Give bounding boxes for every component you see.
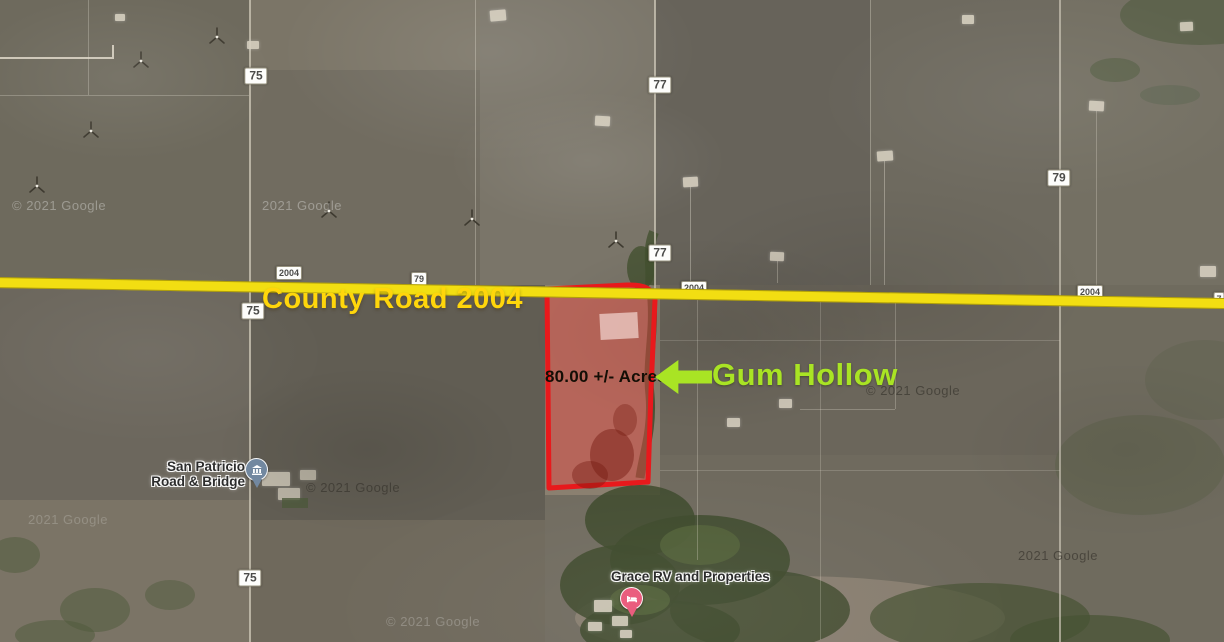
building (594, 600, 612, 612)
field-boundary (88, 0, 89, 95)
lodging-bed-pin-icon (620, 587, 643, 617)
parcel-acres-label: 80.00 +/- Acres (545, 367, 667, 387)
field-boundary (697, 295, 698, 560)
road-shield: 79 (1047, 170, 1070, 187)
wind-turbine-icon (461, 208, 483, 230)
road-shield: 75 (241, 303, 264, 320)
building (612, 616, 628, 626)
google-watermark: 2021 Google (28, 512, 108, 527)
well-pad (727, 418, 740, 427)
field-boundary (0, 95, 249, 96)
road-line (249, 0, 251, 642)
field-boundary (800, 409, 895, 410)
wind-turbine-icon (206, 26, 228, 48)
road-shield: 2004 (276, 266, 302, 280)
google-watermark: 2021 Google (1018, 548, 1098, 563)
access-track (690, 187, 691, 283)
well-pad (1180, 22, 1193, 31)
access-track (1096, 111, 1097, 285)
building (300, 470, 316, 480)
satellite-map: © 2021 Google 2021 Google © 2021 Google … (0, 0, 1224, 642)
well-pad (1200, 266, 1216, 277)
google-watermark: © 2021 Google (12, 198, 106, 213)
road-shield: 75 (238, 570, 261, 587)
well-pad (683, 177, 699, 188)
google-watermark: © 2021 Google (386, 614, 480, 629)
well-pad (770, 252, 784, 261)
well-pad (1089, 101, 1105, 112)
wind-turbine-icon (26, 175, 48, 197)
access-track (777, 261, 778, 283)
access-track (884, 161, 885, 285)
well-pad (877, 150, 894, 161)
google-watermark: 2021 Google (262, 198, 342, 213)
gum-hollow-label: Gum Hollow (712, 357, 898, 393)
government-building-pin-icon (245, 458, 268, 488)
road-line (112, 45, 114, 59)
well-pad (247, 41, 259, 49)
county-road-label: County Road 2004 (262, 283, 523, 316)
wind-turbine-icon (605, 230, 627, 252)
poi-label-line1: San Patricio (140, 459, 245, 474)
wind-turbine-icon (80, 120, 102, 142)
building (620, 630, 632, 638)
building (588, 622, 602, 631)
road-shield: 77 (648, 77, 671, 94)
poi-label-grace-rv: Grace RV and Properties (611, 569, 759, 584)
field-boundary (820, 295, 821, 640)
poi-label-san-patricio: San Patricio Road & Bridge (140, 459, 245, 489)
field-boundary (870, 0, 871, 285)
road-shield: 75 (244, 68, 267, 85)
road-shield: 77 (648, 245, 671, 262)
well-pad (490, 9, 507, 21)
well-pad (962, 15, 974, 24)
wind-turbine-icon (130, 50, 152, 72)
poi-label-line2: Road & Bridge (140, 474, 245, 489)
field-boundary (660, 340, 1060, 341)
well-pad (115, 14, 125, 21)
road-line (0, 57, 112, 59)
field-boundary (475, 0, 476, 285)
road-line (1059, 0, 1061, 642)
google-watermark: © 2021 Google (306, 480, 400, 495)
well-pad (595, 116, 611, 127)
well-pad (779, 399, 792, 408)
building (282, 498, 308, 508)
field-boundary (660, 470, 1060, 471)
